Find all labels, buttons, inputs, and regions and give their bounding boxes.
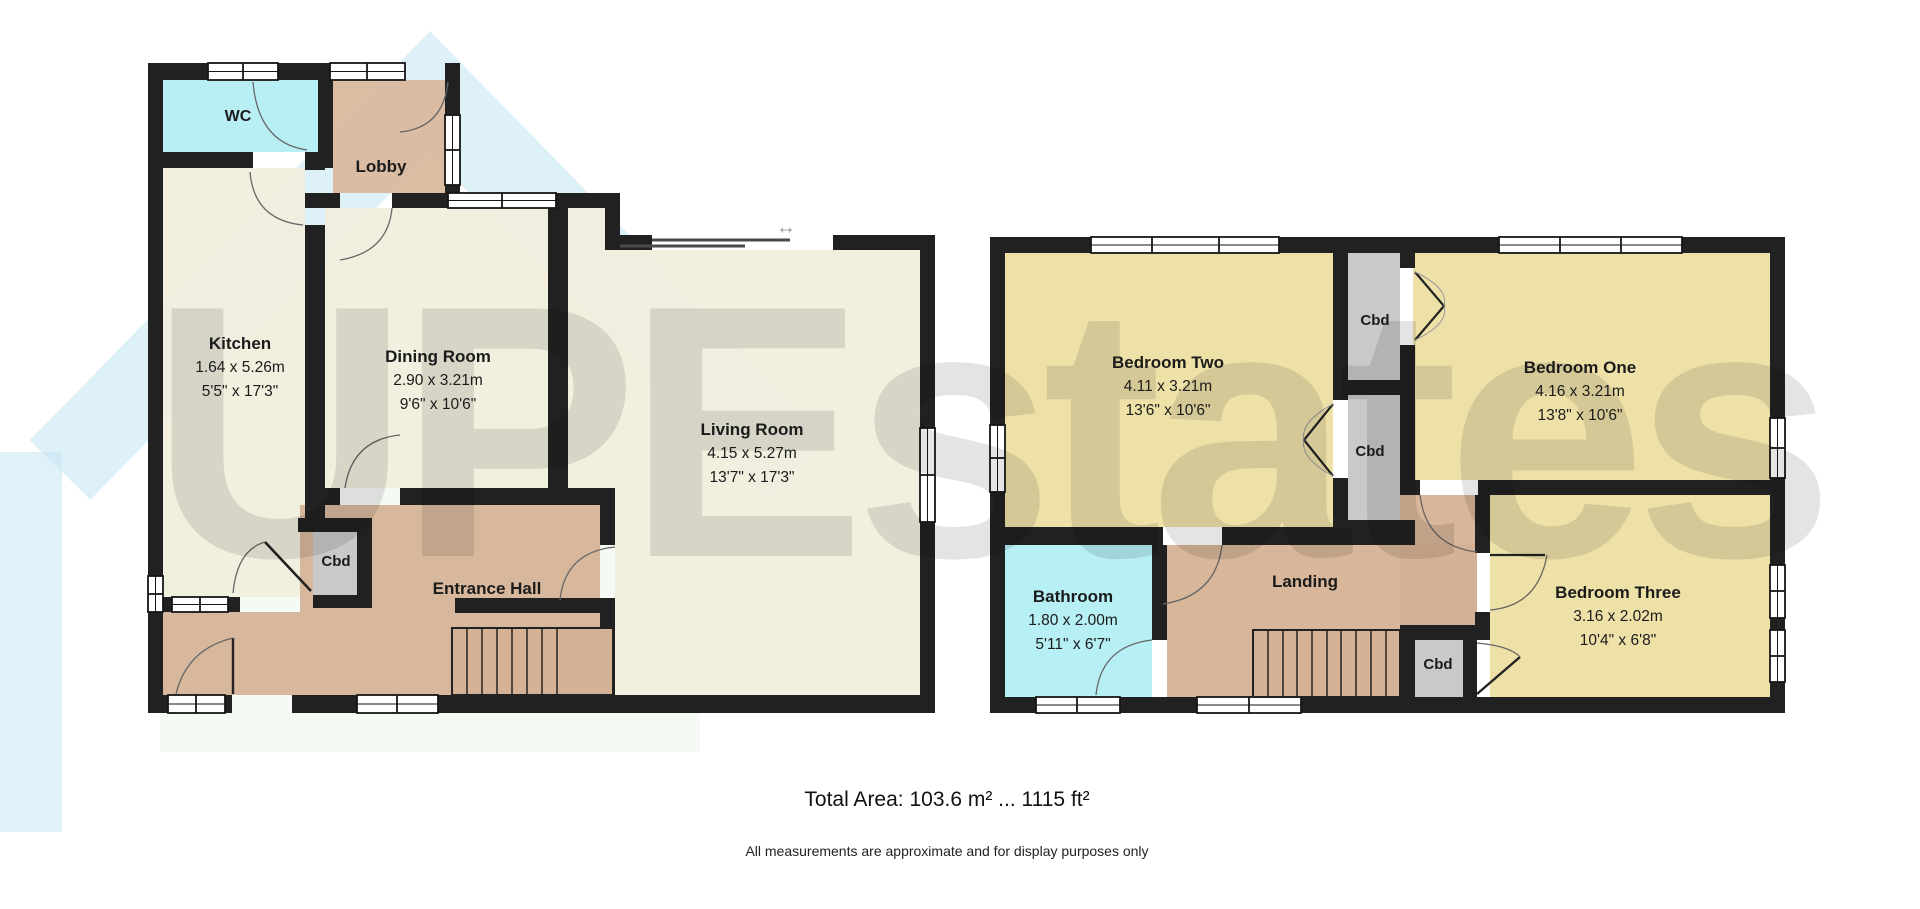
window: [1499, 237, 1682, 253]
ground-stairs: [452, 628, 613, 695]
window: [1770, 565, 1785, 618]
room-name: Bathroom: [1028, 585, 1118, 609]
room-label-wc: WC: [225, 105, 252, 129]
room-size-metric: 1.80 x 2.00m: [1028, 609, 1118, 633]
room-label-living: Living Room 4.15 x 5.27m 13'7" x 17'3": [701, 418, 804, 490]
room-label-cbd-small: Cbd: [1423, 653, 1452, 677]
floorplan-page: UPEstates ↔ WC Lobby Kitchen 1.64 x 5.26…: [0, 0, 1920, 909]
room-size-imperial: 9'6" x 10'6": [385, 393, 491, 417]
window: [357, 695, 438, 713]
window: [208, 63, 278, 80]
room-label-cbd-top: Cbd: [1360, 309, 1389, 333]
room-name: Living Room: [701, 418, 804, 442]
window: [1770, 418, 1785, 478]
room-label-bedroom-two: Bedroom Two 4.11 x 3.21m 13'6" x 10'6": [1112, 351, 1224, 423]
room-label-entrance-hall: Entrance Hall: [433, 577, 542, 601]
room-label-lobby: Lobby: [356, 155, 407, 179]
room-size-imperial: 5'5" x 17'3": [195, 380, 285, 404]
room-size-imperial: 5'11" x 6'7": [1028, 633, 1118, 657]
room-size-metric: 4.16 x 3.21m: [1524, 380, 1636, 404]
floorplan-canvas: [0, 0, 1920, 909]
window: [1091, 237, 1279, 253]
room-label-kitchen: Kitchen 1.64 x 5.26m 5'5" x 17'3": [195, 332, 285, 404]
room-label-cbd-ground: Cbd: [321, 550, 350, 574]
total-area-text: Total Area: 103.6 m² ... 1115 ft²: [804, 788, 1089, 812]
window: [448, 193, 556, 208]
disclaimer-text: All measurements are approximate and for…: [745, 843, 1148, 859]
room-name: Bedroom Three: [1555, 581, 1681, 605]
window: [168, 695, 225, 713]
room-label-landing: Landing: [1272, 570, 1338, 594]
room-name: Bedroom Two: [1112, 351, 1224, 375]
room-size-imperial: 10'4" x 6'8": [1555, 629, 1681, 653]
first-stairs: [1253, 630, 1400, 697]
window: [1036, 697, 1120, 713]
room-size-metric: 3.16 x 2.02m: [1555, 605, 1681, 629]
window: [330, 63, 405, 80]
room-name: Bedroom One: [1524, 356, 1636, 380]
window: [1197, 697, 1301, 713]
room-label-dining: Dining Room 2.90 x 3.21m 9'6" x 10'6": [385, 345, 491, 417]
window: [445, 115, 460, 185]
room-size-metric: 4.15 x 5.27m: [701, 442, 804, 466]
window: [148, 576, 163, 612]
room-landing-corridor: [1400, 495, 1477, 640]
room-size-metric: 2.90 x 3.21m: [385, 369, 491, 393]
room-size-imperial: 13'6" x 10'6": [1112, 399, 1224, 423]
room-label-bathroom: Bathroom 1.80 x 2.00m 5'11" x 6'7": [1028, 585, 1118, 657]
room-size-imperial: 13'7" x 17'3": [701, 466, 804, 490]
room-label-cbd-mid: Cbd: [1355, 440, 1384, 464]
window: [920, 428, 935, 522]
room-size-imperial: 13'8" x 10'6": [1524, 404, 1636, 428]
window: [990, 425, 1005, 492]
room-name: Kitchen: [195, 332, 285, 356]
room-size-metric: 4.11 x 3.21m: [1112, 375, 1224, 399]
window: [172, 597, 228, 612]
window: [1770, 630, 1785, 682]
room-size-metric: 1.64 x 5.26m: [195, 356, 285, 380]
room-name: Dining Room: [385, 345, 491, 369]
room-label-bedroom-one: Bedroom One 4.16 x 3.21m 13'8" x 10'6": [1524, 356, 1636, 428]
room-label-bedroom-three: Bedroom Three 3.16 x 2.02m 10'4" x 6'8": [1555, 581, 1681, 653]
sliding-door-arrow-icon: ↔: [776, 217, 796, 240]
